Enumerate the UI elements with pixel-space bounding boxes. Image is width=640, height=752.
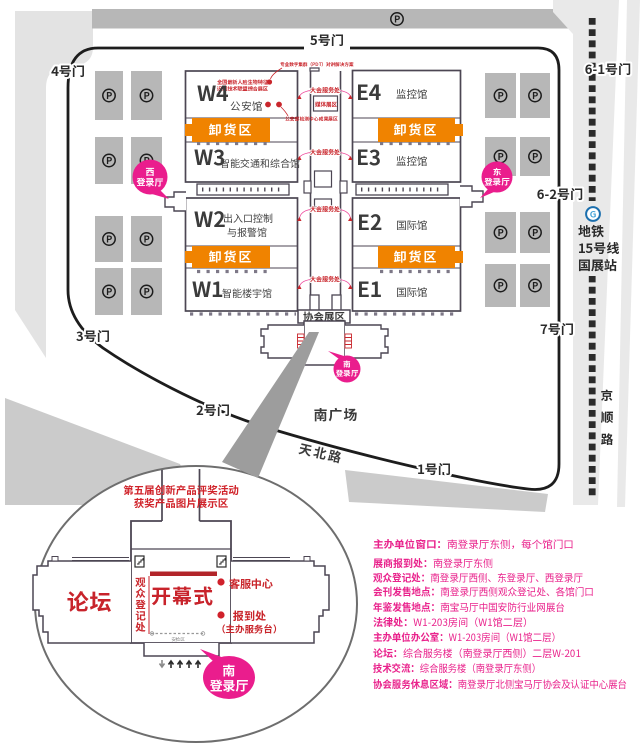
svg-text:协会服务休息区域：南登录厅北侧宝马厅协会及认证中心展台: 协会服务休息区域：南登录厅北侧宝马厅协会及认证中心展台 bbox=[373, 676, 627, 691]
svg-text:安检区: 安检区 bbox=[171, 636, 185, 643]
svg-text:P: P bbox=[143, 231, 150, 245]
svg-text:观众登记处：南登录厅西侧、东登录厅、西登录厅: 观众登记处：南登录厅西侧、东登录厅、西登录厅 bbox=[373, 570, 583, 585]
svg-text:7号门: 7号门 bbox=[540, 319, 574, 338]
svg-text:媒体展区: 媒体展区 bbox=[314, 99, 337, 108]
svg-text:P: P bbox=[532, 88, 539, 102]
svg-text:P: P bbox=[143, 284, 150, 298]
svg-text:（主办服务台）: （主办服务台） bbox=[216, 622, 283, 636]
svg-text:主办单位窗口：南登录厅东侧，每个馆门口: 主办单位窗口：南登录厅东侧，每个馆门口 bbox=[373, 536, 574, 551]
svg-text:获奖产品图片展示区: 获奖产品图片展示区 bbox=[134, 496, 229, 511]
svg-text:E3: E3 bbox=[356, 142, 381, 172]
svg-text:W4: W4 bbox=[197, 78, 229, 108]
svg-text:监控馆: 监控馆 bbox=[396, 87, 428, 102]
svg-text:W1: W1 bbox=[192, 274, 224, 304]
svg-text:6-1号门: 6-1号门 bbox=[585, 59, 631, 78]
svg-text:卸货区: 卸货区 bbox=[208, 247, 253, 266]
svg-text:出入口控制: 出入口控制 bbox=[223, 210, 273, 225]
svg-text:公安部检测中心成果展区: 公安部检测中心成果展区 bbox=[285, 116, 338, 123]
svg-text:P: P bbox=[497, 278, 504, 292]
svg-text:3号门: 3号门 bbox=[76, 326, 110, 345]
svg-text:E1: E1 bbox=[357, 274, 382, 304]
svg-text:专业数字集群（PDT）对讲解决方案: 专业数字集群（PDT）对讲解决方案 bbox=[280, 61, 354, 68]
svg-text:大会服务处: 大会服务处 bbox=[310, 205, 341, 214]
svg-text:国际馆: 国际馆 bbox=[396, 285, 428, 300]
svg-text:P: P bbox=[532, 225, 539, 239]
svg-text:P: P bbox=[106, 231, 113, 245]
svg-text:年鉴发售地点：南宝马厅中国安防行业网展台: 年鉴发售地点：南宝马厅中国安防行业网展台 bbox=[373, 599, 565, 614]
svg-text:大会服务处: 大会服务处 bbox=[310, 86, 341, 95]
svg-text:处: 处 bbox=[135, 620, 146, 635]
svg-text:登录厅: 登录厅 bbox=[336, 368, 359, 379]
svg-text:P: P bbox=[106, 153, 113, 167]
svg-text:P: P bbox=[497, 225, 504, 239]
svg-text:P: P bbox=[106, 284, 113, 298]
svg-text:E4: E4 bbox=[356, 77, 381, 107]
svg-text:P: P bbox=[497, 88, 504, 102]
svg-text:国际馆: 国际馆 bbox=[396, 218, 428, 233]
svg-text:卸货区: 卸货区 bbox=[208, 120, 253, 139]
svg-text:登录厅: 登录厅 bbox=[209, 676, 248, 695]
svg-text:登录厅: 登录厅 bbox=[136, 175, 163, 188]
svg-text:P: P bbox=[143, 88, 150, 102]
svg-text:技术交流：综合服务楼（南登录厅东侧）: 技术交流：综合服务楼（南登录厅东侧） bbox=[373, 660, 541, 675]
svg-text:论坛：综合服务楼（南登录厅西侧）二层W-201: 论坛：综合服务楼（南登录厅西侧）二层W-201 bbox=[373, 645, 581, 660]
svg-text:论坛: 论坛 bbox=[66, 585, 112, 617]
svg-text:6-2号门: 6-2号门 bbox=[537, 184, 583, 203]
svg-text:监控馆: 监控馆 bbox=[396, 154, 428, 169]
svg-text:大会服务处: 大会服务处 bbox=[310, 275, 341, 284]
svg-text:5号门: 5号门 bbox=[310, 30, 344, 49]
svg-text:1号门: 1号门 bbox=[417, 459, 451, 478]
svg-text:开幕式: 开幕式 bbox=[151, 581, 214, 610]
svg-text:公安馆: 公安馆 bbox=[230, 99, 263, 114]
svg-text:G: G bbox=[590, 208, 597, 221]
svg-text:展商报到处：南登录厅东侧: 展商报到处：南登录厅东侧 bbox=[373, 555, 493, 570]
svg-text:主办单位办公室：W1-203房间（W1馆二层）: 主办单位办公室：W1-203房间（W1馆二层） bbox=[373, 629, 561, 644]
svg-text:4号门: 4号门 bbox=[51, 61, 85, 80]
svg-text:卸货区: 卸货区 bbox=[393, 120, 438, 139]
svg-text:P: P bbox=[394, 11, 401, 25]
svg-text:2号门: 2号门 bbox=[196, 400, 230, 419]
svg-text:大会服务处: 大会服务处 bbox=[310, 148, 341, 157]
svg-text:P: P bbox=[532, 149, 539, 163]
svg-text:W2: W2 bbox=[194, 204, 226, 234]
svg-text:智能交通和综合馆: 智能交通和综合馆 bbox=[220, 155, 300, 170]
svg-text:南广场: 南广场 bbox=[314, 405, 359, 425]
svg-text:卸货区: 卸货区 bbox=[393, 247, 438, 266]
svg-text:登录厅: 登录厅 bbox=[484, 176, 510, 188]
svg-text:会刊发售地点：南登录厅西侧观众登记处、各馆门口: 会刊发售地点：南登录厅西侧观众登记处、各馆门口 bbox=[373, 584, 594, 599]
svg-text:P: P bbox=[497, 149, 504, 163]
svg-text:顺: 顺 bbox=[601, 407, 614, 426]
svg-text:与报警馆: 与报警馆 bbox=[227, 224, 267, 239]
svg-text:E2: E2 bbox=[357, 207, 382, 237]
svg-text:智能楼宇馆: 智能楼宇馆 bbox=[222, 285, 272, 300]
svg-text:国展站: 国展站 bbox=[578, 255, 617, 274]
svg-text:P: P bbox=[106, 88, 113, 102]
svg-text:法律处：W1-203房间（W1馆二层）: 法律处：W1-203房间（W1馆二层） bbox=[373, 614, 533, 629]
svg-text:京: 京 bbox=[601, 385, 614, 404]
svg-text:路: 路 bbox=[601, 429, 614, 448]
svg-text:P: P bbox=[532, 278, 539, 292]
svg-text:客服中心: 客服中心 bbox=[229, 576, 273, 592]
